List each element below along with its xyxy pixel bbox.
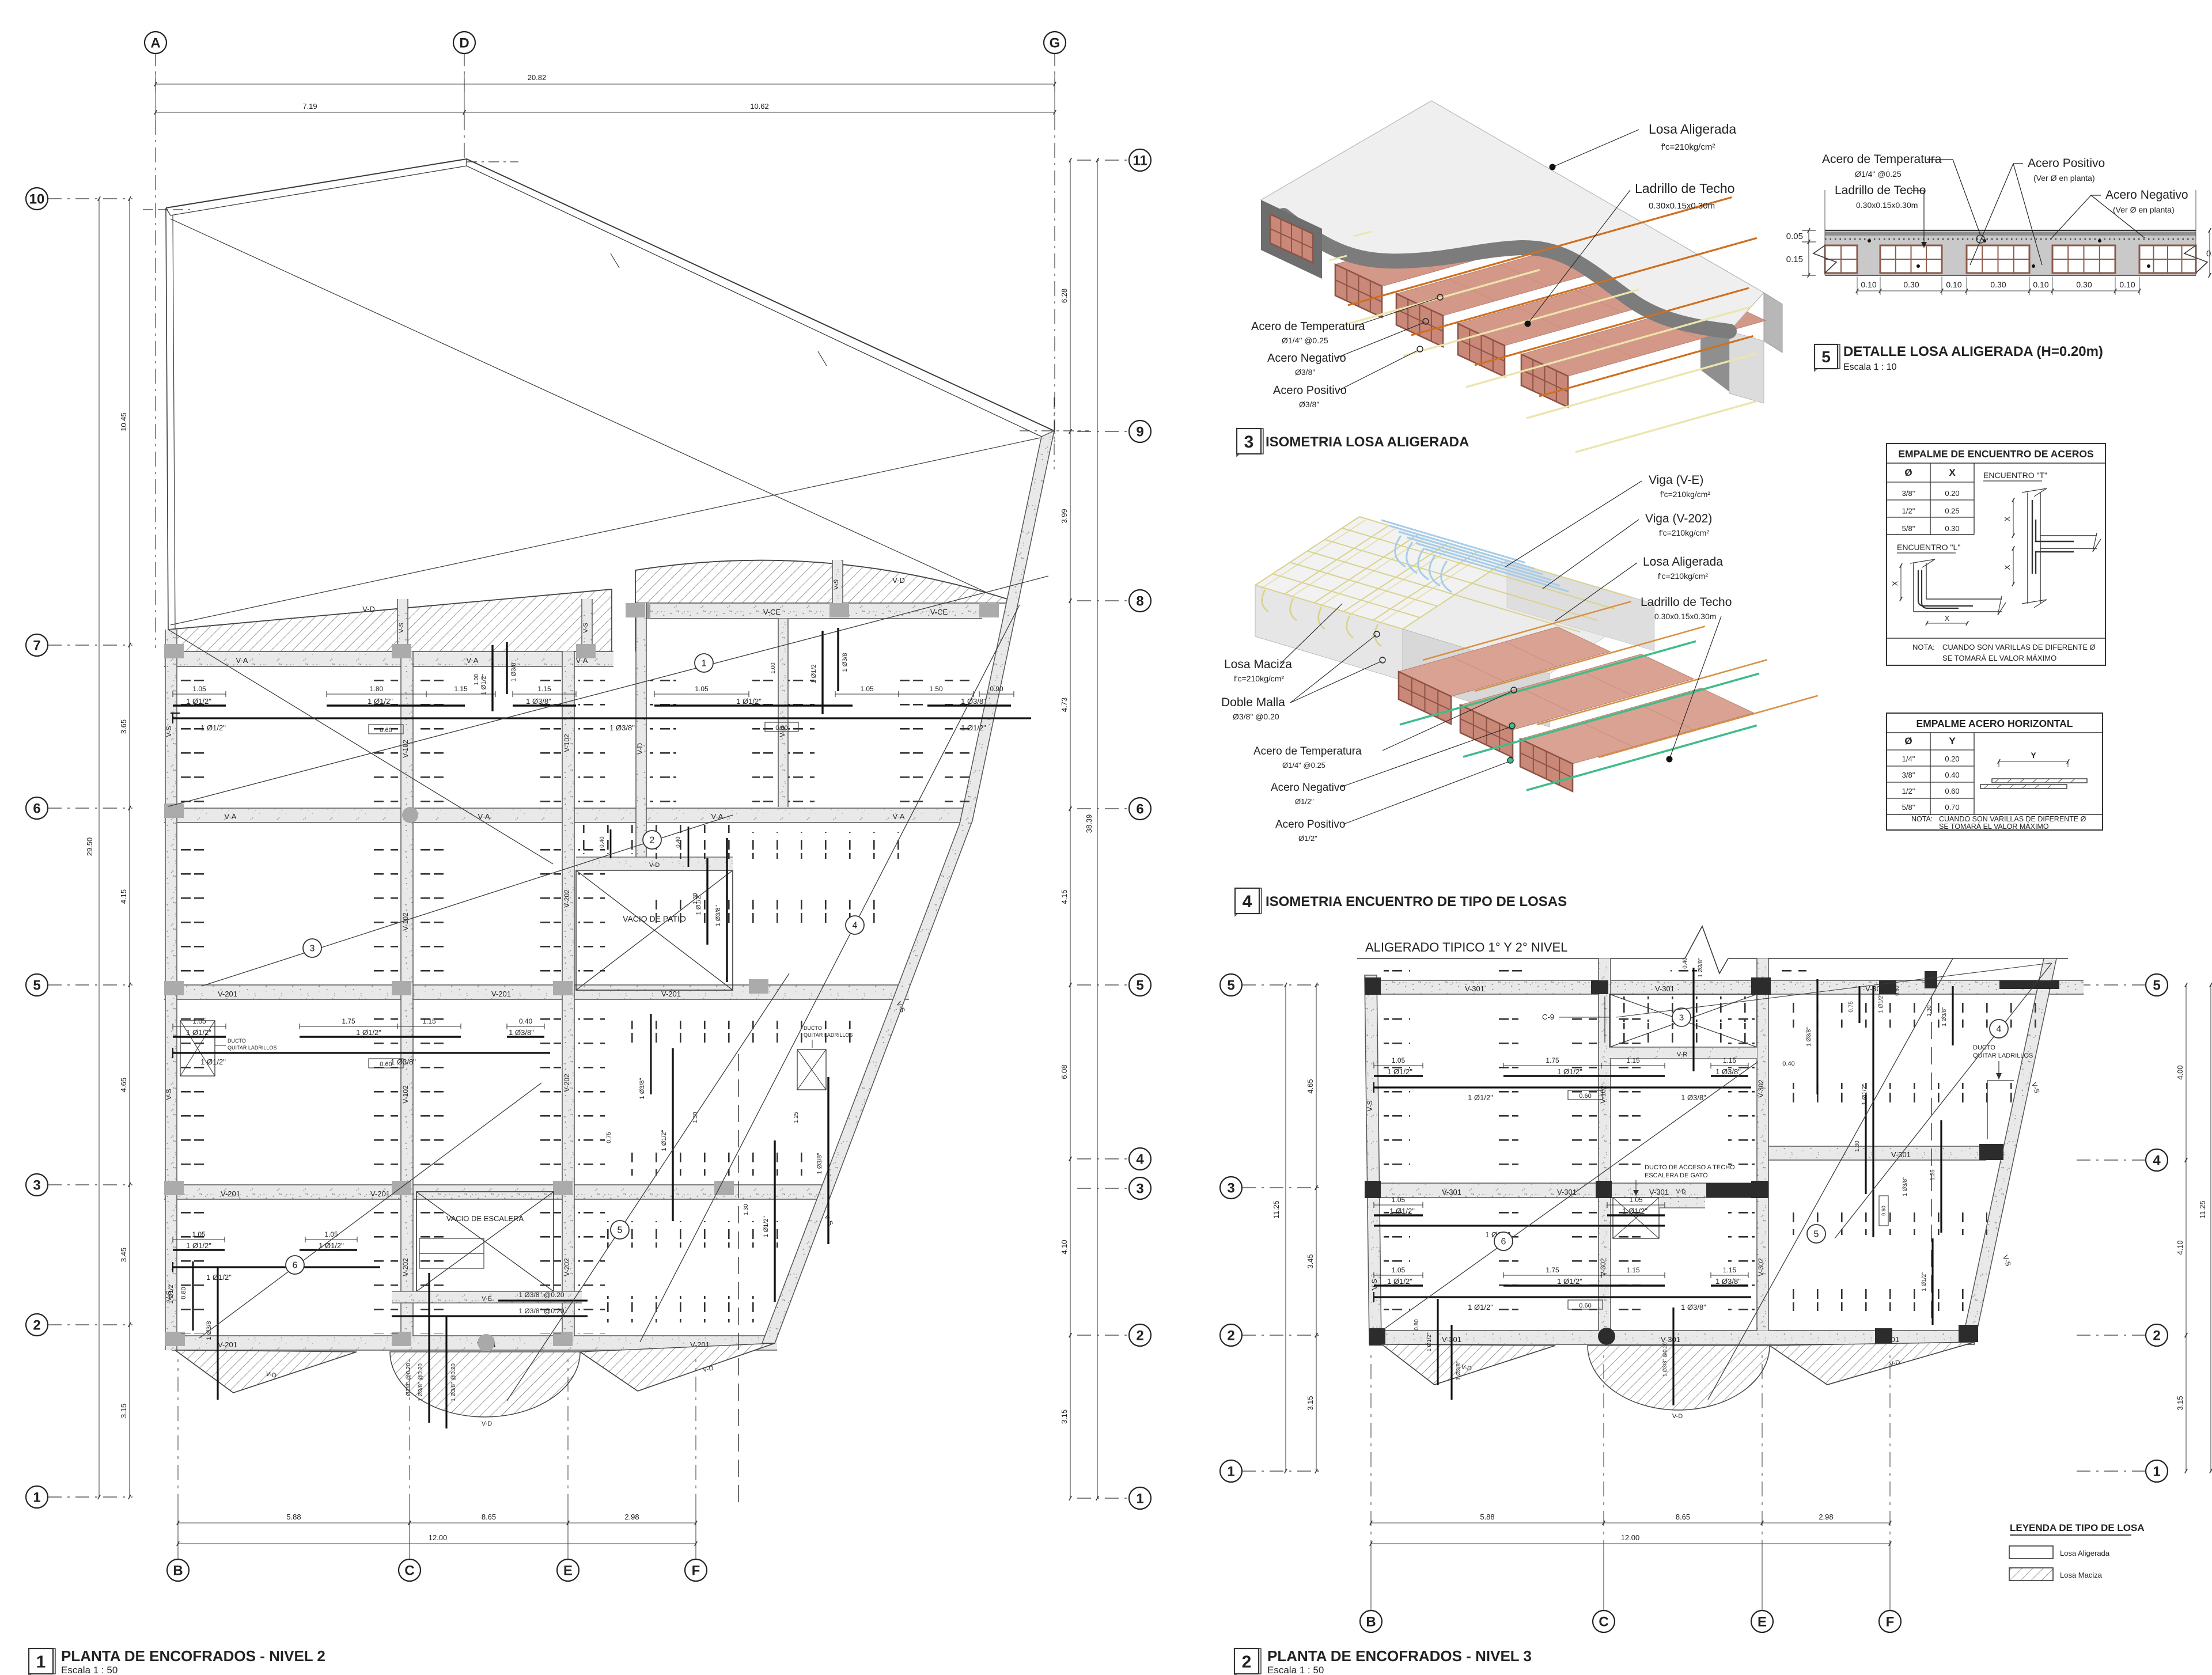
svg-text:11.25: 11.25 [2198, 1200, 2207, 1219]
svg-text:1: 1 [36, 1653, 46, 1672]
svg-text:V-A: V-A [893, 812, 905, 821]
svg-text:6: 6 [293, 1261, 298, 1271]
svg-text:Acero Positivo: Acero Positivo [1275, 818, 1345, 831]
svg-text:0.80: 0.80 [1414, 1319, 1420, 1331]
svg-text:1 Ø1/2": 1 Ø1/2" [1921, 1272, 1927, 1291]
svg-text:1 Ø3/8" @0.20: 1 Ø3/8" @0.20 [418, 1363, 424, 1401]
svg-text:V-D: V-D [1672, 1413, 1683, 1420]
svg-text:Ø: Ø [1904, 467, 1912, 478]
svg-text:1 Ø3/8": 1 Ø3/8" [510, 660, 517, 681]
svg-text:4.65: 4.65 [1306, 1079, 1315, 1093]
svg-text:0.75: 0.75 [606, 1132, 612, 1143]
svg-text:X: X [1945, 614, 1950, 623]
svg-text:5: 5 [2153, 977, 2160, 993]
svg-text:0.70: 0.70 [1945, 803, 1959, 812]
svg-text:V-CE: V-CE [763, 608, 781, 616]
svg-text:6.08: 6.08 [1060, 1064, 1069, 1079]
svg-text:3: 3 [1227, 1180, 1234, 1196]
svg-text:1.30: 1.30 [1854, 1140, 1861, 1152]
svg-text:Ø3/8": Ø3/8" [1295, 367, 1315, 377]
svg-text:0.30x0.15x0.30m: 0.30x0.15x0.30m [1856, 200, 1918, 210]
svg-text:ALIGERADO TIPICO 1° Y 2° NIVEL: ALIGERADO TIPICO 1° Y 2° NIVEL [1365, 940, 1567, 954]
svg-text:1 Ø1/2": 1 Ø1/2" [763, 1216, 770, 1237]
svg-text:1 Ø1/2": 1 Ø1/2" [319, 1241, 344, 1250]
svg-text:1 Ø1/2": 1 Ø1/2" [356, 1028, 381, 1037]
svg-text:1: 1 [33, 1490, 40, 1505]
svg-text:F: F [692, 1563, 700, 1578]
svg-text:QUITAR LADRILLOS: QUITAR LADRILLOS [1973, 1052, 2033, 1059]
svg-text:1 Ø1/2": 1 Ø1/2" [1468, 1303, 1493, 1312]
svg-text:ESCALERA DE GATO: ESCALERA DE GATO [1645, 1172, 1708, 1179]
svg-text:DUCTO: DUCTO [228, 1038, 246, 1044]
svg-text:1.30: 1.30 [692, 1112, 699, 1123]
svg-text:Acero de Temperatura: Acero de Temperatura [1253, 745, 1362, 757]
svg-text:Ø1/4" @0.25: Ø1/4" @0.25 [1855, 169, 1902, 179]
svg-text:f'c=210kg/cm²: f'c=210kg/cm² [1660, 490, 1710, 499]
svg-text:Losa Aligerada: Losa Aligerada [2060, 1549, 2110, 1557]
svg-text:V-A: V-A [711, 812, 724, 821]
svg-text:5: 5 [1814, 1230, 1819, 1240]
svg-text:1.05: 1.05 [192, 1017, 206, 1025]
svg-text:CUANDO SON VARILLAS DE DIFEREN: CUANDO SON VARILLAS DE DIFERENTE Ø [1939, 815, 2086, 823]
svg-text:5: 5 [1136, 977, 1143, 993]
svg-text:V-S: V-S [1366, 1100, 1374, 1111]
svg-text:3: 3 [1244, 433, 1254, 452]
svg-text:CUANDO SON VARILLAS DE DIFEREN: CUANDO SON VARILLAS DE DIFERENTE Ø [1942, 643, 2096, 651]
svg-text:LEYENDA DE TIPO DE LOSA: LEYENDA DE TIPO DE LOSA [2010, 1522, 2145, 1533]
svg-text:2: 2 [2153, 1328, 2160, 1343]
svg-text:V-202: V-202 [563, 1074, 571, 1092]
svg-text:5: 5 [618, 1226, 623, 1236]
svg-text:F: F [1886, 1614, 1895, 1629]
svg-text:1 Ø1/2": 1 Ø1/2" [186, 1028, 211, 1037]
svg-text:1 Ø3/8": 1 Ø3/8" [1681, 1303, 1706, 1312]
svg-text:3/8": 3/8" [1902, 489, 1915, 498]
svg-text:0.90: 0.90 [990, 685, 1003, 693]
svg-text:1.15: 1.15 [537, 685, 551, 693]
svg-text:V-201: V-201 [218, 1340, 237, 1349]
svg-text:1 Ø3/8": 1 Ø3/8" [1715, 1277, 1741, 1286]
svg-text:1 Ø1/2": 1 Ø1/2" [1387, 1067, 1412, 1076]
svg-text:ENCUENTRO "T": ENCUENTRO "T" [1983, 471, 2047, 480]
svg-text:Ø1/2": Ø1/2" [1295, 797, 1314, 806]
svg-text:1: 1 [2153, 1464, 2160, 1479]
svg-text:5/8": 5/8" [1902, 524, 1915, 533]
svg-text:V-202: V-202 [563, 889, 571, 908]
svg-text:Acero Positivo: Acero Positivo [1273, 384, 1347, 397]
svg-text:0.40: 0.40 [519, 1017, 533, 1025]
svg-text:ISOMETRIA ENCUENTRO DE TIPO DE: ISOMETRIA ENCUENTRO DE TIPO DE LOSAS [1266, 894, 1567, 909]
svg-text:1.05: 1.05 [192, 685, 206, 693]
svg-text:2: 2 [1227, 1328, 1234, 1343]
svg-text:3.45: 3.45 [119, 1248, 128, 1262]
svg-text:4.15: 4.15 [1060, 889, 1069, 904]
svg-text:V-201: V-201 [221, 1189, 240, 1198]
svg-text:6.28: 6.28 [1060, 289, 1069, 303]
svg-text:Losa Aligerada: Losa Aligerada [1649, 122, 1736, 137]
svg-text:4: 4 [853, 921, 858, 931]
svg-text:0.60: 0.60 [1579, 1302, 1591, 1309]
svg-text:V-CE: V-CE [930, 608, 948, 616]
svg-text:0.05: 0.05 [1786, 232, 1803, 241]
svg-text:0.40: 0.40 [675, 836, 681, 848]
svg-text:1 Ø1/2": 1 Ø1/2" [1861, 1083, 1868, 1105]
svg-text:VACIO DE ESCALERA: VACIO DE ESCALERA [446, 1214, 524, 1223]
svg-text:V-D: V-D [482, 1420, 492, 1427]
svg-text:X: X [2003, 516, 2012, 521]
svg-text:V-301: V-301 [1557, 1188, 1577, 1196]
svg-text:0.20: 0.20 [1945, 489, 1959, 498]
svg-text:1 Ø1/2": 1 Ø1/2" [368, 697, 393, 706]
svg-text:V-301: V-301 [1649, 1188, 1669, 1196]
svg-text:1 Ø3/8" @0.20: 1 Ø3/8" @0.20 [450, 1363, 457, 1401]
svg-text:4: 4 [1243, 892, 1252, 911]
svg-text:0.10: 0.10 [2119, 280, 2135, 289]
svg-text:1 Ø3/8": 1 Ø3/8" [1902, 1177, 1908, 1196]
svg-text:Y: Y [2031, 751, 2036, 760]
svg-text:V-S: V-S [582, 623, 589, 633]
svg-text:Escala 1 : 10: Escala 1 : 10 [1843, 362, 1897, 372]
svg-text:8.65: 8.65 [1676, 1513, 1690, 1521]
svg-text:1.05: 1.05 [1392, 1056, 1406, 1064]
svg-text:V-D: V-D [636, 743, 644, 755]
svg-text:Viga (V-E): Viga (V-E) [1649, 473, 1703, 487]
svg-text:3.15: 3.15 [119, 1404, 128, 1418]
svg-text:V-301: V-301 [1465, 984, 1484, 993]
svg-text:1 Ø1/2": 1 Ø1/2" [1468, 1093, 1493, 1102]
svg-text:V-D: V-D [1676, 1189, 1686, 1195]
svg-text:9: 9 [1136, 424, 1143, 439]
svg-text:3.65: 3.65 [119, 719, 128, 734]
svg-text:3: 3 [310, 944, 315, 954]
svg-text:1.75: 1.75 [1546, 1056, 1559, 1064]
svg-text:1/4": 1/4" [1902, 755, 1915, 763]
svg-text:EMPALME ACERO HORIZONTAL: EMPALME ACERO HORIZONTAL [1916, 718, 2073, 729]
svg-text:2: 2 [1242, 1653, 1252, 1672]
svg-text:1.15: 1.15 [454, 685, 468, 693]
svg-text:1 Ø1/2": 1 Ø1/2" [1387, 1277, 1412, 1286]
svg-text:f'c=210kg/cm²: f'c=210kg/cm² [1661, 142, 1715, 152]
svg-text:11.25: 11.25 [1272, 1200, 1281, 1219]
svg-text:B: B [173, 1563, 183, 1578]
svg-text:V-E: V-E [482, 1295, 492, 1302]
svg-text:V-302: V-302 [1757, 1079, 1765, 1098]
svg-text:5: 5 [1227, 977, 1234, 993]
svg-text:4: 4 [1136, 1151, 1144, 1167]
svg-text:5.88: 5.88 [1480, 1513, 1494, 1521]
svg-text:2: 2 [1136, 1328, 1143, 1343]
svg-text:1 Ø1/2": 1 Ø1/2" [186, 697, 211, 706]
svg-text:1.15: 1.15 [1626, 1266, 1640, 1274]
svg-text:V-202: V-202 [563, 1258, 571, 1276]
svg-text:1.80: 1.80 [370, 685, 384, 693]
svg-text:1.30: 1.30 [692, 893, 699, 904]
svg-text:3: 3 [1679, 1013, 1684, 1023]
svg-text:f'c=210kg/cm²: f'c=210kg/cm² [1234, 674, 1284, 683]
svg-text:1 Ø1/2": 1 Ø1/2" [661, 1130, 668, 1151]
svg-text:PLANTA DE ENCOFRADOS - NIVEL 3: PLANTA DE ENCOFRADOS - NIVEL 3 [1267, 1647, 1532, 1665]
svg-text:3/8": 3/8" [1902, 771, 1915, 779]
svg-text:1 Ø1/2": 1 Ø1/2" [206, 1273, 232, 1282]
svg-text:4.10: 4.10 [1060, 1240, 1069, 1254]
svg-text:Ø3/8": Ø3/8" [1299, 400, 1319, 409]
svg-text:Ø1/4" @0.25: Ø1/4" @0.25 [1282, 761, 1325, 770]
svg-text:Acero de Temperatura: Acero de Temperatura [1822, 153, 1942, 166]
svg-text:1.75: 1.75 [342, 1017, 355, 1025]
svg-text:1.05: 1.05 [860, 685, 874, 693]
svg-text:1 Ø1/2": 1 Ø1/2" [961, 723, 986, 732]
svg-text:3: 3 [1136, 1181, 1143, 1196]
svg-text:Ø3/8" @0.20: Ø3/8" @0.20 [1233, 712, 1279, 721]
svg-text:0.40: 0.40 [1782, 1060, 1794, 1067]
svg-text:1 Ø1/2": 1 Ø1/2" [200, 1058, 226, 1066]
svg-text:3.15: 3.15 [1060, 1409, 1069, 1424]
svg-text:0.15: 0.15 [1786, 255, 1803, 264]
svg-text:Ladrillo de Techo: Ladrillo de Techo [1641, 596, 1732, 609]
svg-text:A: A [150, 35, 160, 51]
svg-text:0.30: 0.30 [2076, 280, 2092, 289]
svg-text:ISOMETRIA LOSA ALIGERADA: ISOMETRIA LOSA ALIGERADA [1266, 434, 1469, 450]
svg-text:10.62: 10.62 [750, 102, 769, 111]
svg-text:1.00: 1.00 [770, 662, 777, 674]
svg-text:C-9: C-9 [1542, 1013, 1554, 1021]
svg-text:NOTA:: NOTA: [1911, 815, 1933, 823]
svg-text:1 Ø3/8": 1 Ø3/8" [715, 905, 722, 926]
svg-text:1 Ø1/2: 1 Ø1/2 [810, 664, 817, 683]
svg-text:V-D: V-D [649, 862, 660, 869]
svg-text:1 Ø3/8": 1 Ø3/8" [639, 1078, 646, 1099]
svg-text:V-102: V-102 [402, 740, 410, 758]
svg-text:SE TOMARÁ EL VALOR MÁXIMO: SE TOMARÁ EL VALOR MÁXIMO [1939, 822, 2049, 831]
svg-text:0.30x0.15x0.30m: 0.30x0.15x0.30m [1649, 201, 1715, 211]
svg-text:Y: Y [1949, 736, 1956, 746]
svg-text:2.98: 2.98 [1819, 1513, 1833, 1521]
svg-text:1.15: 1.15 [1723, 1056, 1737, 1064]
svg-text:Escala 1 : 50: Escala 1 : 50 [1267, 1665, 1324, 1675]
svg-text:0.30: 0.30 [1990, 280, 2006, 289]
svg-text:8: 8 [1136, 593, 1143, 609]
svg-text:8.65: 8.65 [482, 1513, 496, 1521]
svg-text:E: E [1758, 1614, 1767, 1629]
svg-text:1 Ø3/8": 1 Ø3/8" [816, 1153, 823, 1174]
svg-text:5/8": 5/8" [1902, 803, 1915, 812]
svg-text:2: 2 [650, 836, 655, 846]
svg-text:1.05: 1.05 [192, 1230, 206, 1238]
svg-text:0.60: 0.60 [1945, 787, 1959, 795]
svg-text:Ø1/4" @0.25: Ø1/4" @0.25 [1282, 336, 1328, 345]
svg-text:1 Ø1/2": 1 Ø1/2" [1557, 1277, 1582, 1286]
svg-text:EMPALME DE ENCUENTRO DE ACEROS: EMPALME DE ENCUENTRO DE ACEROS [1898, 448, 2093, 460]
svg-text:1 Ø3/8": 1 Ø3/8" [961, 697, 986, 706]
svg-text:1 Ø3/8": 1 Ø3/8" [1806, 1027, 1812, 1047]
svg-text:10.45: 10.45 [119, 412, 128, 431]
svg-text:1.05: 1.05 [1392, 1196, 1406, 1204]
svg-text:4.65: 4.65 [119, 1078, 128, 1092]
svg-text:5: 5 [33, 977, 40, 993]
svg-text:6: 6 [1136, 801, 1143, 817]
svg-text:Losa Maciza: Losa Maciza [1224, 658, 1292, 671]
svg-text:V-S: V-S [165, 1089, 173, 1100]
svg-text:0.40: 0.40 [1682, 957, 1688, 969]
svg-text:V-A: V-A [236, 656, 248, 665]
svg-text:X: X [2003, 564, 2012, 570]
svg-text:0.30: 0.30 [1945, 524, 1959, 533]
svg-text:0.30: 0.30 [1903, 280, 1919, 289]
svg-text:V-201: V-201 [370, 1189, 390, 1198]
svg-text:7.19: 7.19 [302, 102, 317, 111]
svg-text:1.15: 1.15 [1626, 1056, 1640, 1064]
svg-text:0.60: 0.60 [380, 727, 392, 734]
svg-text:3.99: 3.99 [1060, 509, 1069, 523]
svg-text:G: G [1050, 35, 1060, 51]
svg-text:(Ver Ø en planta): (Ver Ø en planta) [2033, 173, 2095, 183]
svg-text:Acero Negativo: Acero Negativo [1271, 782, 1346, 794]
svg-text:1: 1 [702, 659, 707, 669]
svg-text:3.15: 3.15 [2176, 1396, 2184, 1410]
svg-text:1 Ø3/8: 1 Ø3/8 [842, 653, 849, 672]
svg-text:E: E [563, 1563, 573, 1578]
svg-text:C: C [404, 1563, 414, 1578]
svg-text:V-S: V-S [398, 623, 405, 633]
svg-text:DUCTO DE ACCESO A TECHO: DUCTO DE ACCESO A TECHO [1645, 1164, 1735, 1171]
svg-text:1: 1 [1227, 1464, 1234, 1479]
svg-text:Acero de Temperatura: Acero de Temperatura [1251, 320, 1365, 333]
svg-text:1 Ø3/8": 1 Ø3/8" [1715, 1067, 1741, 1076]
svg-text:Viga (V-202): Viga (V-202) [1645, 512, 1712, 525]
svg-text:Acero Positivo: Acero Positivo [2028, 157, 2105, 170]
svg-text:DETALLE LOSA ALIGERADA (H=0.20: DETALLE LOSA ALIGERADA (H=0.20m) [1843, 344, 2103, 359]
svg-text:6: 6 [1501, 1237, 1506, 1247]
svg-text:0.20: 0.20 [1945, 755, 1959, 763]
svg-text:3.45: 3.45 [1306, 1254, 1315, 1268]
svg-text:4: 4 [1997, 1025, 2002, 1034]
svg-text:1.05: 1.05 [695, 685, 709, 693]
svg-text:1.05: 1.05 [324, 1230, 338, 1238]
svg-text:29.50: 29.50 [85, 837, 94, 857]
svg-text:5: 5 [1821, 348, 1831, 366]
svg-text:(Ver Ø en planta): (Ver Ø en planta) [2113, 205, 2175, 214]
svg-text:V-102: V-102 [563, 734, 571, 752]
svg-text:1.30: 1.30 [743, 1204, 749, 1215]
svg-text:1.00: 1.00 [474, 674, 480, 685]
svg-text:0.60: 0.60 [380, 1061, 392, 1068]
svg-text:0.30x0.15x0.30m: 0.30x0.15x0.30m [1654, 612, 1716, 621]
svg-text:QUITAR LADRILLOS: QUITAR LADRILLOS [228, 1045, 276, 1051]
svg-text:V-202: V-202 [402, 1258, 410, 1276]
svg-text:1 Ø1/2": 1 Ø1/2" [1878, 994, 1884, 1013]
svg-text:1 Ø3/8" @0.20: 1 Ø3/8" @0.20 [518, 1307, 564, 1315]
svg-text:0.60: 0.60 [1894, 986, 1900, 996]
svg-text:V-A: V-A [225, 812, 237, 821]
svg-text:11: 11 [1132, 153, 1147, 168]
svg-text:1 Ø1/2": 1 Ø1/2" [168, 1282, 175, 1303]
svg-text:1.05: 1.05 [1392, 1266, 1406, 1274]
svg-text:X: X [1949, 467, 1956, 478]
svg-text:1.50: 1.50 [929, 685, 943, 693]
svg-text:4: 4 [2153, 1153, 2161, 1168]
svg-text:0.80: 0.80 [180, 1287, 187, 1299]
svg-text:f'c=210kg/cm²: f'c=210kg/cm² [1659, 528, 1709, 537]
svg-text:Ø1/2": Ø1/2" [1298, 834, 1317, 843]
svg-text:1: 1 [1136, 1491, 1143, 1506]
svg-text:ENCUENTRO "L": ENCUENTRO "L" [1897, 543, 1960, 552]
svg-text:Ladrillo de Techo: Ladrillo de Techo [1635, 181, 1734, 196]
svg-text:0.40: 0.40 [599, 836, 605, 848]
svg-text:Ø: Ø [1904, 736, 1912, 746]
svg-text:1 Ø1/2": 1 Ø1/2" [1622, 1207, 1647, 1215]
svg-text:Escala 1 : 50: Escala 1 : 50 [61, 1665, 118, 1675]
svg-text:1.15: 1.15 [422, 1017, 436, 1025]
svg-text:1 Ø1/2": 1 Ø1/2" [1557, 1067, 1582, 1076]
svg-text:1 Ø3/8": 1 Ø3/8" [1698, 958, 1704, 977]
svg-text:1.05: 1.05 [1629, 1196, 1643, 1204]
svg-text:0.60: 0.60 [1579, 1093, 1591, 1100]
svg-text:3.15: 3.15 [1306, 1396, 1315, 1410]
svg-text:V-D: V-D [362, 605, 375, 613]
svg-text:3: 3 [33, 1177, 40, 1193]
svg-text:4.00: 4.00 [2176, 1065, 2184, 1079]
svg-text:5.88: 5.88 [286, 1513, 301, 1521]
svg-text:4.73: 4.73 [1060, 698, 1069, 712]
svg-text:V-S: V-S [833, 579, 840, 590]
svg-text:C: C [1599, 1614, 1608, 1629]
svg-text:1 Ø1/2": 1 Ø1/2" [186, 1241, 211, 1250]
svg-text:1/2": 1/2" [1902, 507, 1915, 516]
svg-text:V-D: V-D [892, 576, 905, 585]
svg-text:4.10: 4.10 [2176, 1240, 2184, 1255]
svg-text:Acero Negativo: Acero Negativo [1267, 352, 1346, 365]
svg-text:1/2": 1/2" [1902, 787, 1915, 795]
svg-text:SE TOMARÁ EL VALOR MÁXIMO: SE TOMARÁ EL VALOR MÁXIMO [1942, 654, 2056, 662]
svg-text:Acero Negativo: Acero Negativo [2105, 188, 2188, 202]
svg-text:1 Ø3/8": 1 Ø3/8" [1681, 1093, 1706, 1102]
svg-text:D: D [459, 35, 469, 51]
svg-text:Doble Malla: Doble Malla [1221, 696, 1285, 709]
svg-text:1.15: 1.15 [1723, 1266, 1737, 1274]
svg-text:V-S: V-S [1370, 1279, 1378, 1290]
svg-text:V-201: V-201 [491, 990, 511, 998]
svg-text:2.98: 2.98 [624, 1513, 639, 1521]
svg-text:38.39: 38.39 [1085, 814, 1093, 833]
svg-text:1 Ø1/2": 1 Ø1/2" [1426, 1332, 1433, 1352]
svg-text:0.40: 0.40 [1945, 771, 1959, 779]
svg-text:V-201: V-201 [661, 990, 681, 998]
svg-text:V-R: V-R [1677, 1051, 1687, 1058]
svg-text:0.20: 0.20 [2206, 249, 2212, 259]
svg-text:2: 2 [33, 1317, 40, 1333]
svg-text:V-302: V-302 [1757, 1258, 1765, 1276]
svg-text:1 Ø3/8": 1 Ø3/8" [526, 697, 551, 706]
svg-text:1 Ø3/8": 1 Ø3/8" [1456, 1361, 1462, 1381]
svg-text:NOTA:: NOTA: [1912, 643, 1935, 651]
svg-text:1.25: 1.25 [793, 1112, 800, 1123]
svg-text:0.10: 0.10 [1861, 280, 1876, 289]
svg-text:X: X [1891, 581, 1899, 586]
svg-text:DUCTO: DUCTO [1973, 1044, 1995, 1051]
svg-text:1.25: 1.25 [1930, 1169, 1936, 1181]
svg-text:PLANTA DE ENCOFRADOS - NIVEL 2: PLANTA DE ENCOFRADOS - NIVEL 2 [61, 1647, 325, 1665]
svg-text:V-301: V-301 [1655, 984, 1675, 993]
svg-text:7: 7 [33, 638, 40, 653]
svg-text:12.00: 12.00 [1621, 1533, 1640, 1542]
svg-text:V-A: V-A [467, 656, 479, 665]
svg-text:B: B [1366, 1614, 1376, 1629]
svg-text:1 Ø1/2": 1 Ø1/2" [200, 723, 226, 732]
svg-text:12.00: 12.00 [429, 1533, 448, 1542]
svg-text:f'c=210kg/cm²: f'c=210kg/cm² [1658, 571, 1708, 581]
svg-text:Losa Aligerada: Losa Aligerada [1643, 555, 1723, 569]
svg-text:1 Ø1/2: 1 Ø1/2 [480, 676, 487, 695]
